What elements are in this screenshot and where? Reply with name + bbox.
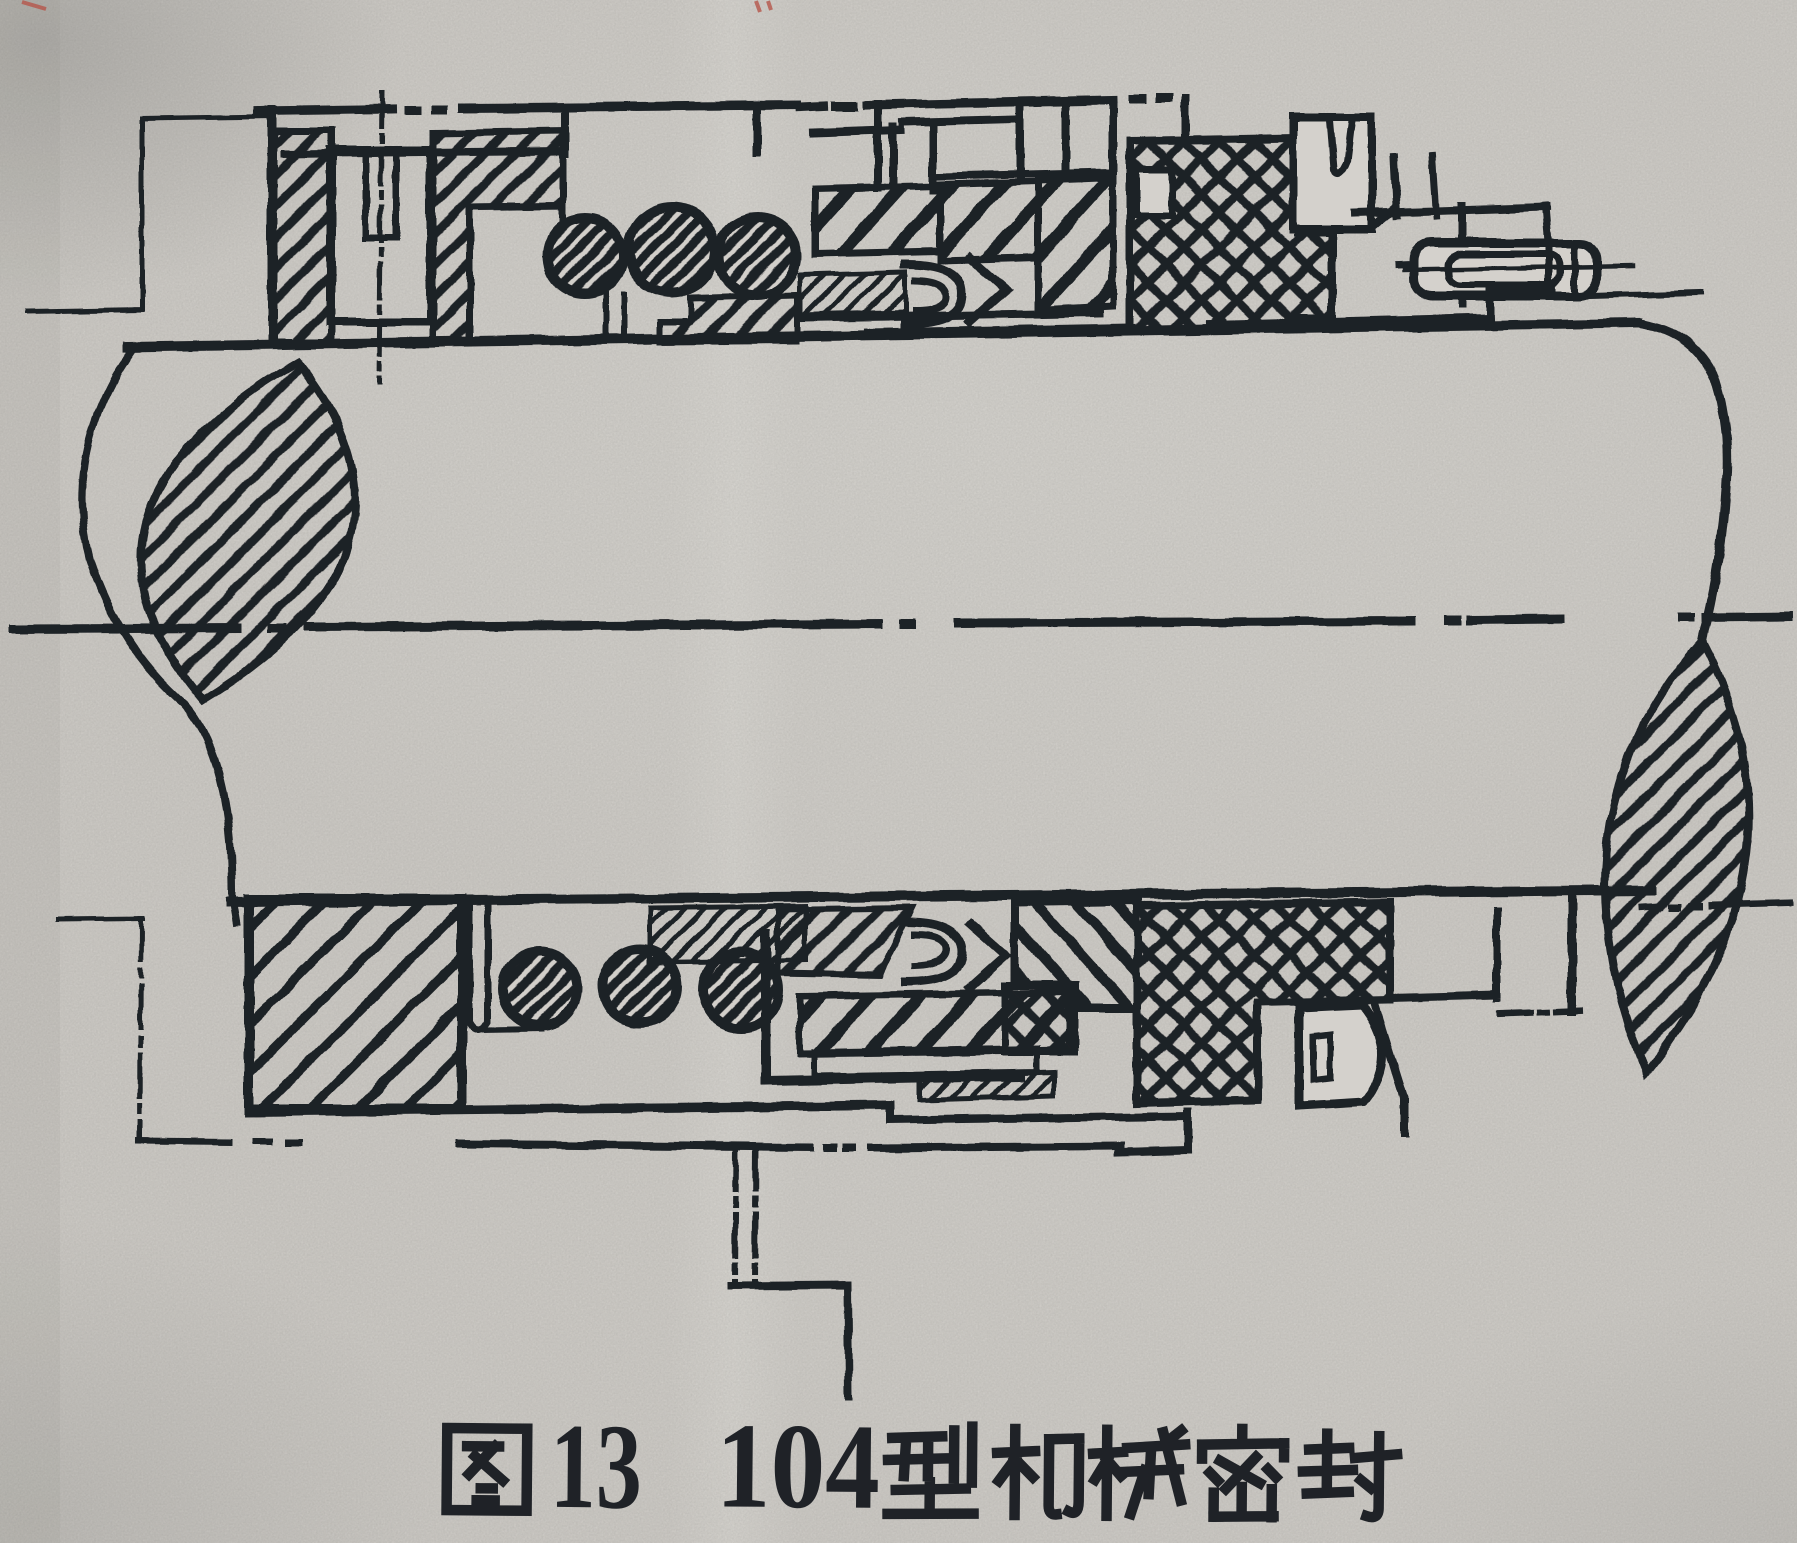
svg-text:104: 104 — [715, 1398, 880, 1534]
svg-text:13: 13 — [549, 1399, 642, 1535]
